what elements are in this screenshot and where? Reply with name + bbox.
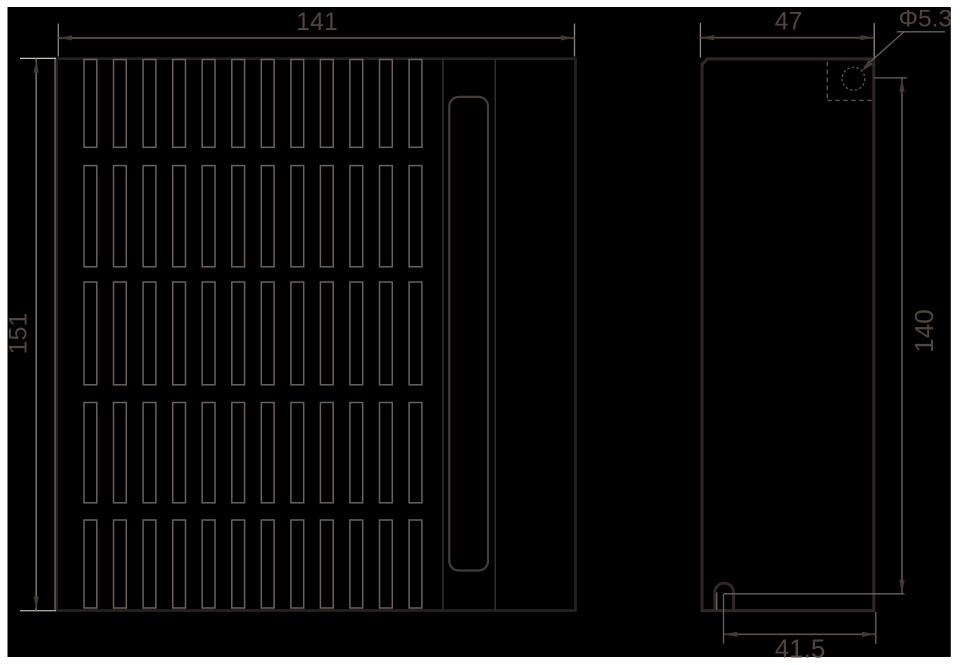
svg-text:41.5: 41.5	[775, 634, 826, 664]
svg-text:47: 47	[775, 8, 803, 36]
svg-text:140: 140	[909, 309, 939, 352]
svg-text:141: 141	[296, 8, 338, 36]
svg-text:Φ5.3: Φ5.3	[899, 5, 953, 32]
svg-text:151: 151	[4, 313, 32, 355]
